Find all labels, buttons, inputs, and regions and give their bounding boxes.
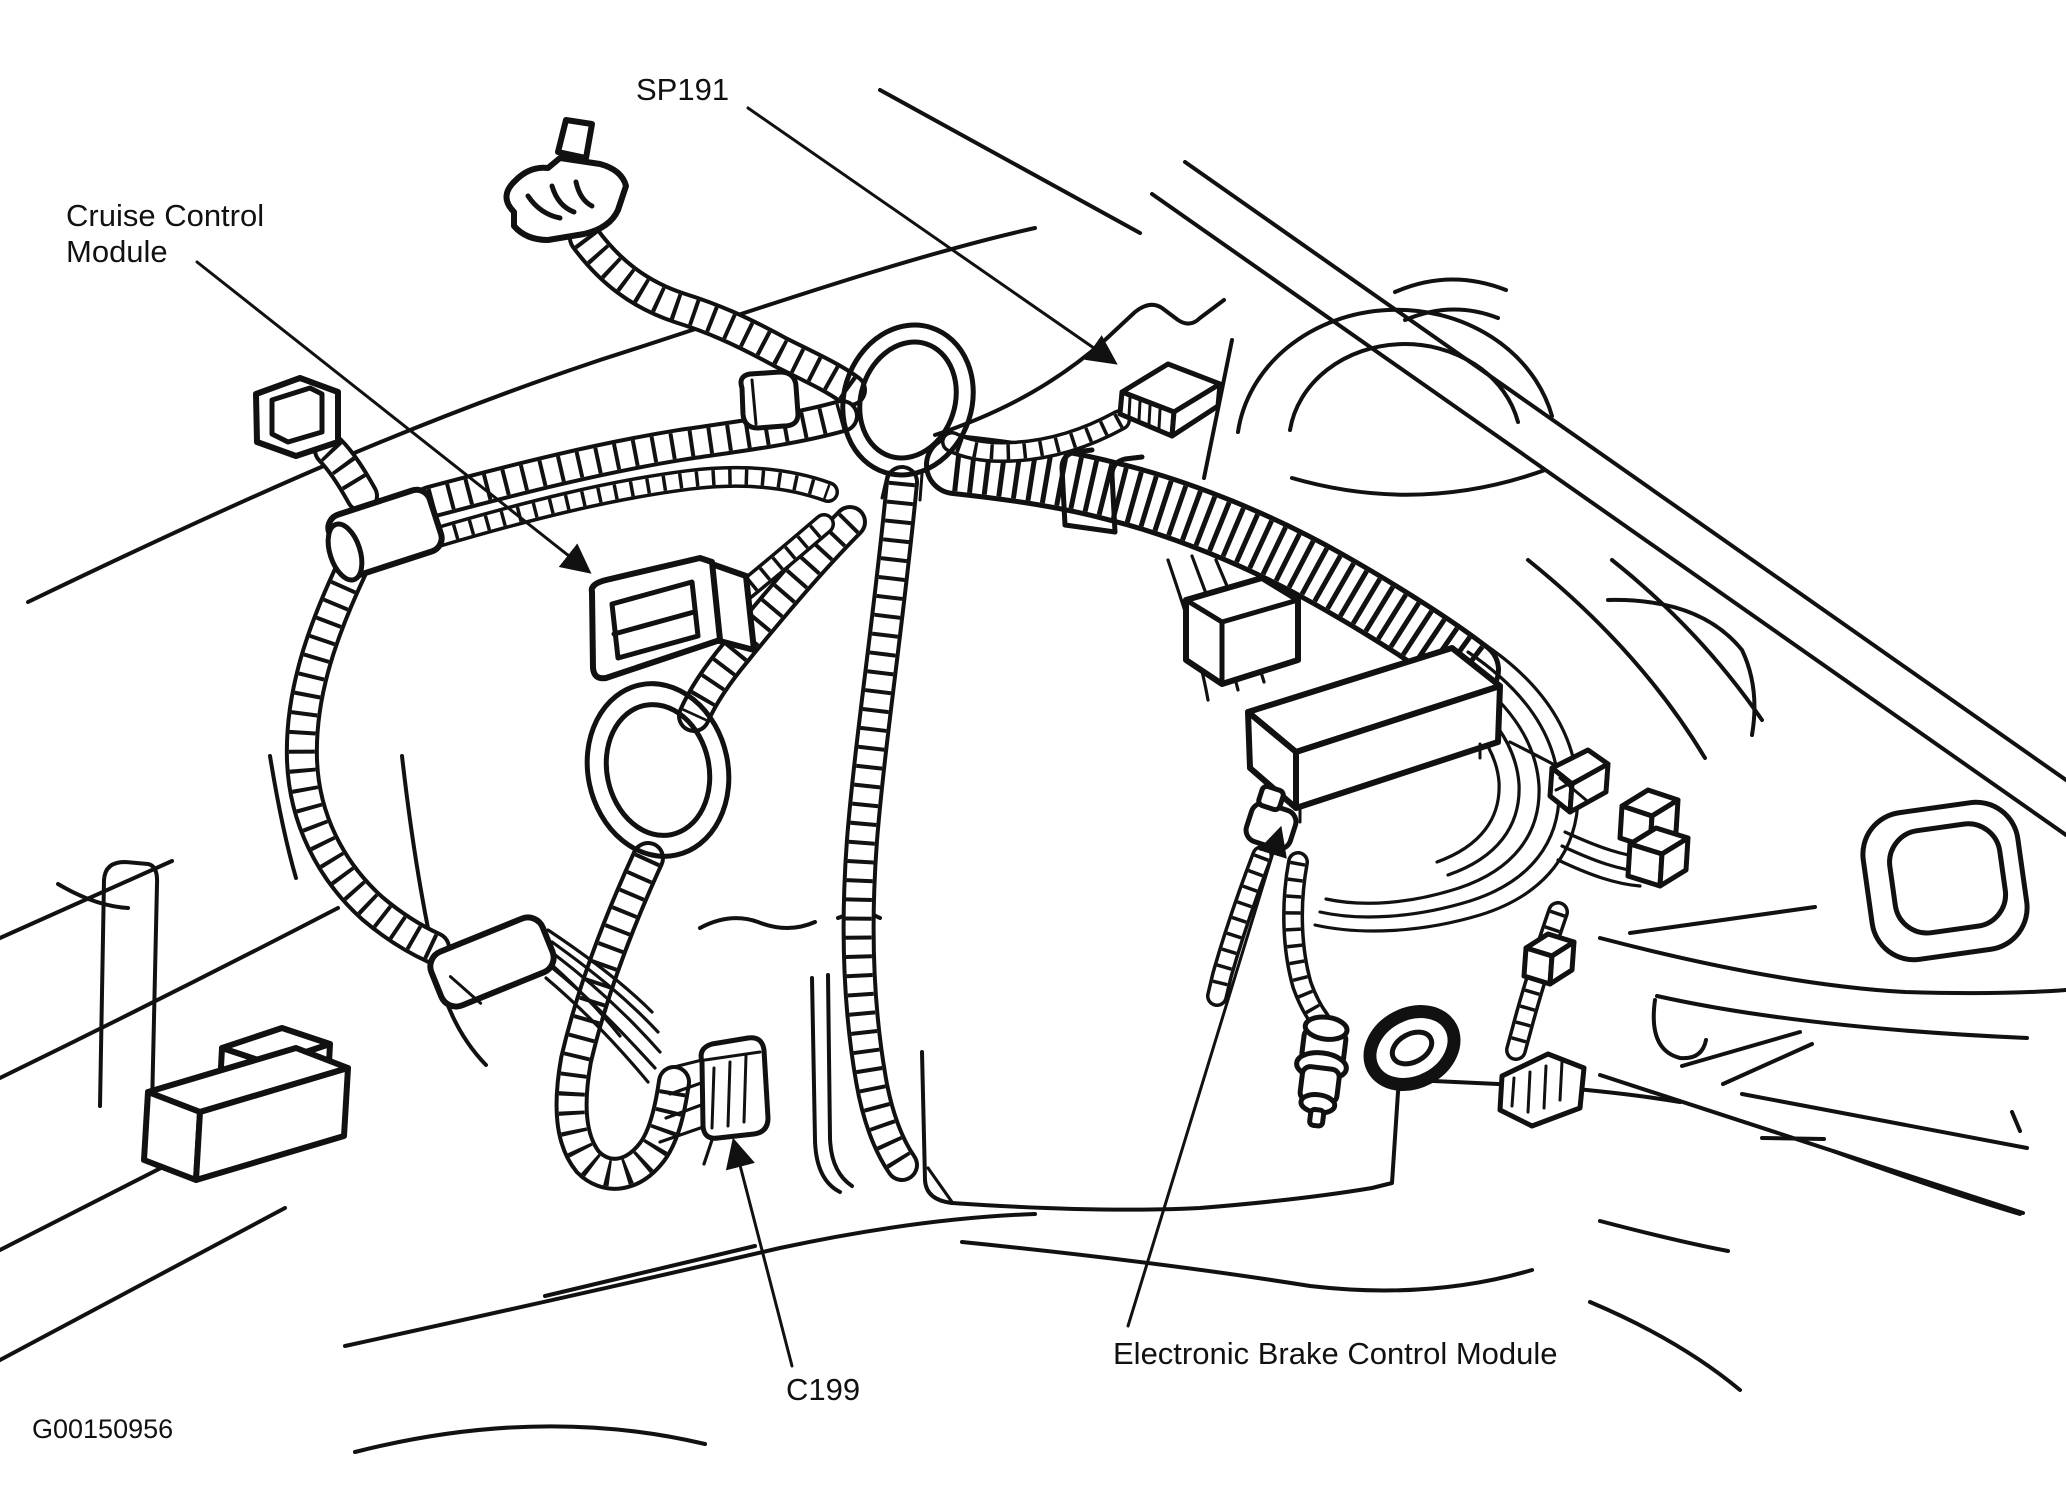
floor-crease-4 — [355, 1426, 705, 1452]
firewall-line-center — [402, 756, 486, 1065]
clip-pigtail-tube — [585, 238, 850, 390]
right-seg-7 — [1833, 1151, 2020, 1214]
lower-right-flat-connector — [1500, 1054, 1584, 1126]
dome-arc-outer — [1238, 310, 1552, 432]
dome-arc-top-1 — [1395, 279, 1506, 292]
right-seg-5 — [1762, 1138, 1824, 1139]
tunnel-line-1 — [812, 978, 840, 1192]
round-plug-pigtail-tube — [1293, 862, 1320, 1020]
dome-arc-inner — [1290, 344, 1518, 430]
left-loop-tube — [302, 568, 434, 948]
x-face-connector — [1550, 750, 1608, 812]
cruise-control-module-label-line2: Module — [66, 234, 168, 269]
right-seg-6 — [2012, 1112, 2020, 1131]
c199-connector — [701, 1038, 768, 1139]
stub-connector-tube — [1217, 856, 1262, 996]
c199-leader — [734, 1142, 792, 1366]
round-plug — [1289, 1014, 1352, 1128]
floor-crease-1 — [345, 1214, 1035, 1346]
right-seg-8 — [1600, 1221, 1728, 1251]
harness-clamp-bracket — [256, 378, 338, 456]
right-seg-3 — [1600, 1075, 2023, 1213]
sp191-tail-tube — [952, 420, 1120, 452]
wedge-connector — [1186, 578, 1298, 684]
firewall-squiggle-1 — [700, 918, 815, 928]
mid-drop-tube — [859, 482, 902, 1165]
right-hook — [1654, 1000, 1706, 1058]
ebcm-leader — [1128, 830, 1280, 1326]
small-cube-connector — [1524, 934, 1574, 984]
sp191-label: SP191 — [636, 72, 729, 107]
right-hatch-1 — [1682, 1032, 1800, 1066]
wheelwell-arc-1 — [1528, 560, 1705, 758]
engine-compartment-line-art: Cruise Control Module SP191 C199 Electro… — [0, 0, 2066, 1508]
sp191-splice-pack — [1120, 364, 1220, 436]
right-seg-2 — [1657, 996, 2027, 1038]
convolute-sleeve — [322, 486, 446, 584]
floor-crease-2 — [545, 1246, 755, 1296]
right-seg-1 — [1630, 907, 1815, 933]
right-seg-9 — [1590, 1302, 1740, 1390]
clip-connector — [506, 120, 626, 240]
left-diagonal-line-3 — [0, 1208, 285, 1360]
clamp-to-sleeve-tube — [330, 450, 362, 496]
wire-fan-sleeve — [426, 913, 559, 1012]
sp191-leader — [748, 108, 1114, 362]
c199-label: C199 — [786, 1372, 860, 1407]
left-bracket-line — [100, 862, 157, 1108]
figure-code: G00150956 — [32, 1414, 173, 1444]
floor-crease-3 — [962, 1242, 1532, 1290]
ebcm-label: Electronic Brake Control Module — [1113, 1336, 1558, 1371]
twin-cube-connectors — [1620, 790, 1688, 886]
relay-connector-block — [144, 1028, 348, 1180]
ebcm-module — [1248, 648, 1500, 822]
cruise-control-module-label-line1: Cruise Control — [66, 198, 264, 233]
dome-base-arc — [1292, 470, 1545, 495]
wheelwell-arc-2 — [1612, 560, 1762, 720]
stub-flag-connector — [741, 372, 798, 428]
hood-edge-line — [880, 90, 1140, 233]
body-hole-inner — [1885, 820, 2009, 937]
wiring-harness-figure: Cruise Control Module SP191 C199 Electro… — [0, 0, 2066, 1508]
